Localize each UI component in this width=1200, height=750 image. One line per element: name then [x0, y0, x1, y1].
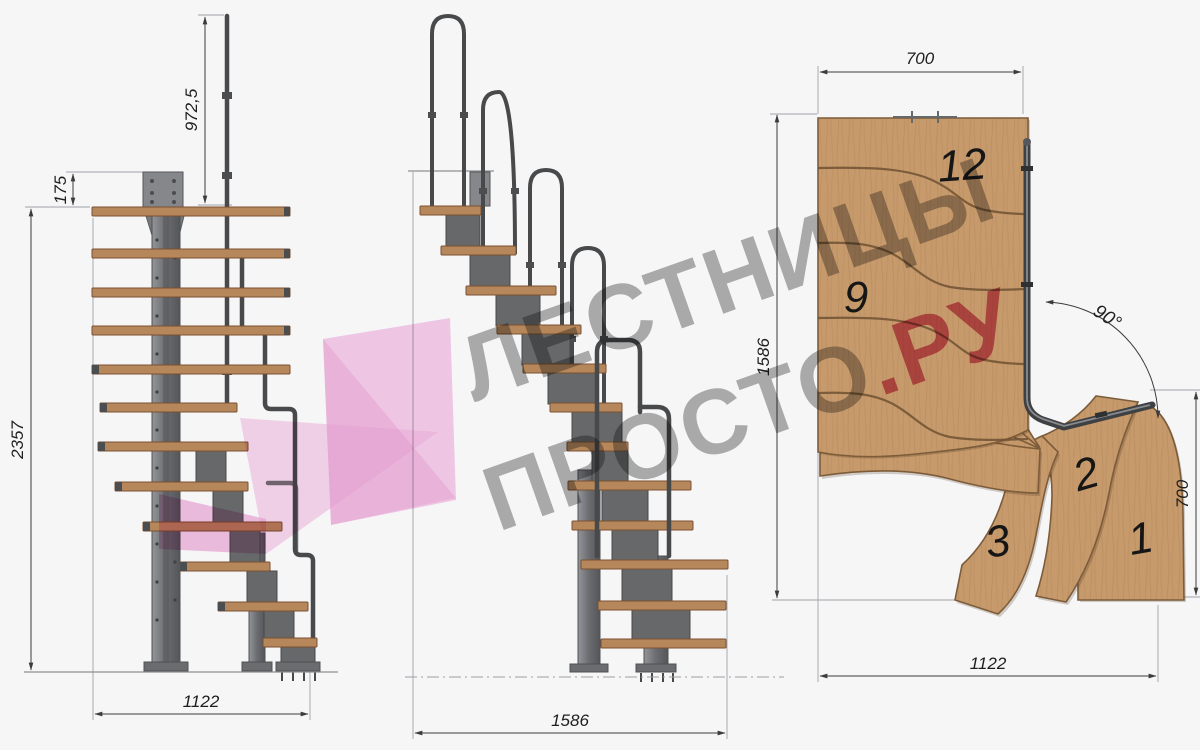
support-base	[242, 662, 272, 671]
technical-drawing-page: 972,5 175 2357 1122	[0, 0, 1200, 750]
staircase-drawing: 972,5 175 2357 1122	[0, 0, 1200, 750]
step-module	[264, 611, 294, 638]
dim-total-height: 2357	[8, 421, 27, 460]
rail-joint	[222, 172, 232, 179]
mounting-plate	[143, 172, 183, 207]
dim-total-run: 1122	[183, 692, 220, 711]
dim-rail-height: 972,5	[182, 88, 201, 131]
rail-joint	[222, 92, 232, 99]
step-module	[196, 451, 226, 482]
module-base	[276, 662, 320, 671]
step-module	[247, 571, 277, 602]
dim-front-run: 1586	[551, 711, 589, 730]
dim-bottom-length: 1122	[970, 654, 1007, 673]
dim-top-width: 700	[906, 49, 935, 68]
dim-plate-offset: 175	[51, 175, 70, 204]
front-column-1-base	[570, 664, 608, 672]
dim-right-width: 700	[1173, 479, 1192, 508]
column-groove	[163, 216, 169, 666]
front-column-2-base	[636, 664, 676, 672]
column-base-flange	[144, 662, 188, 671]
